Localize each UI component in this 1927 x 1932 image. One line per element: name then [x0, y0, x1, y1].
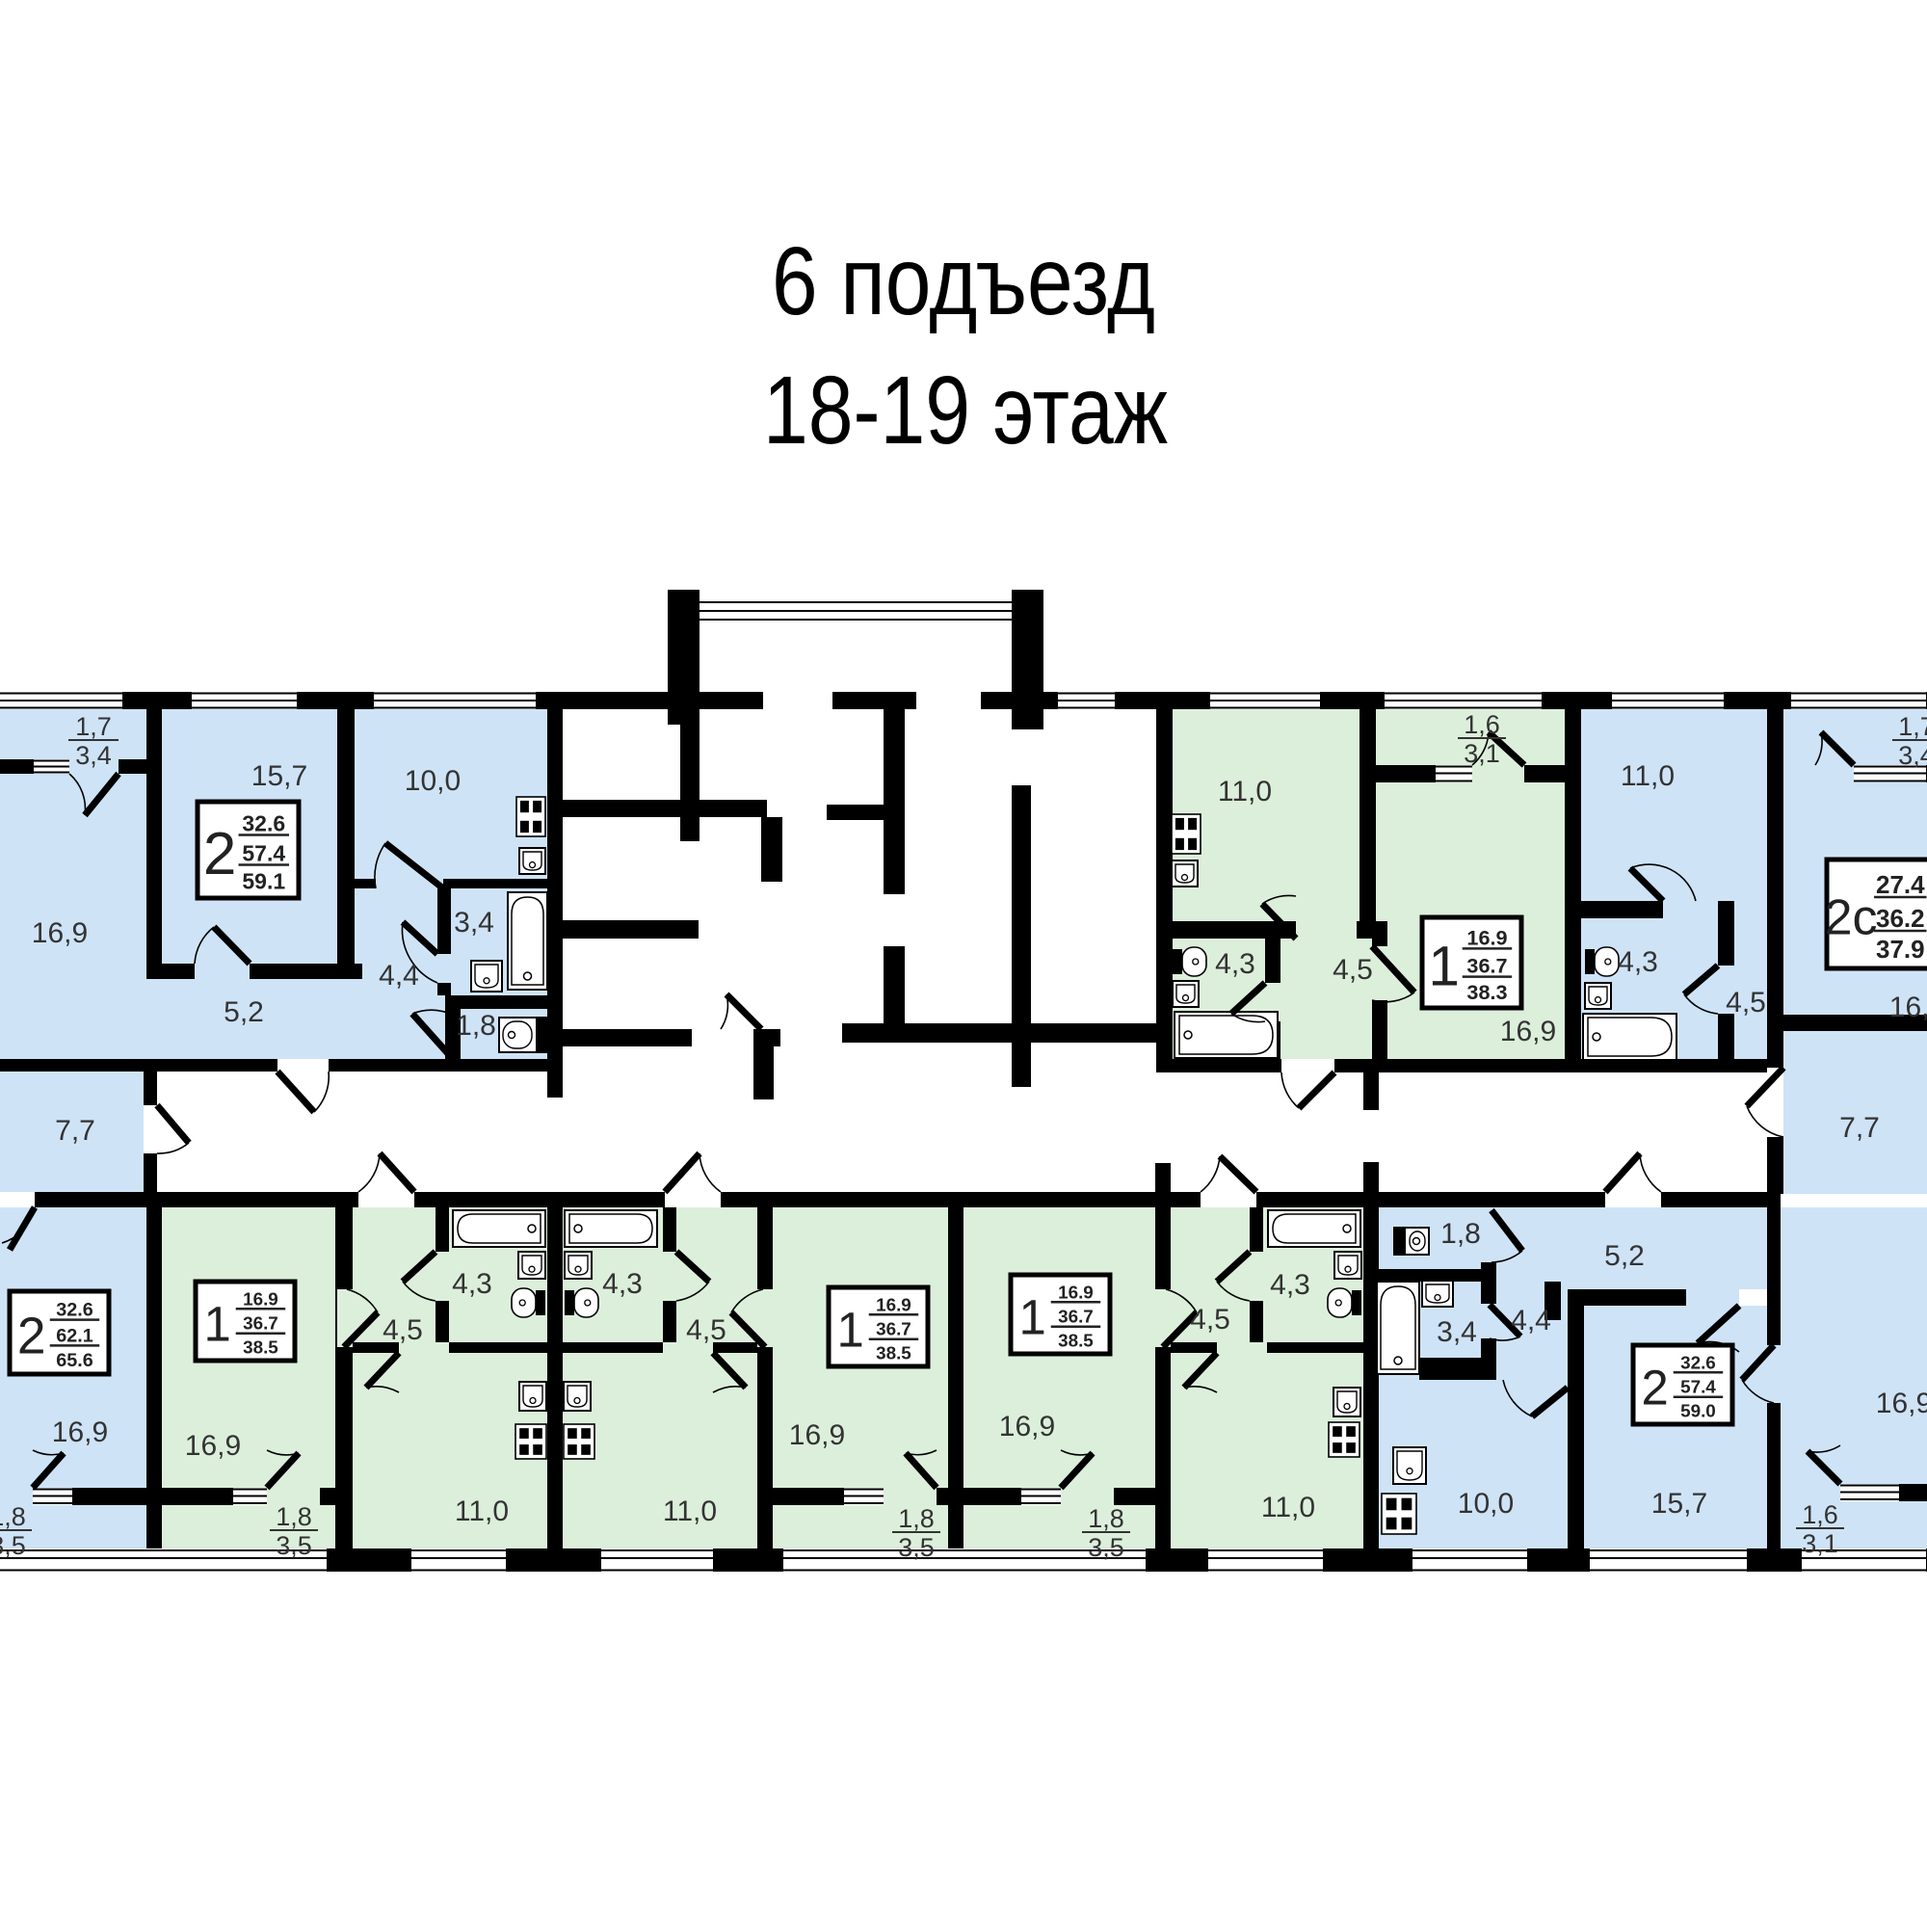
svg-text:32.6: 32.6 [242, 811, 285, 836]
svg-text:36.7: 36.7 [1058, 1307, 1094, 1327]
svg-text:1: 1 [837, 1302, 864, 1357]
svg-text:36.7: 36.7 [1466, 954, 1507, 978]
svg-text:4,4: 4,4 [1511, 1305, 1551, 1337]
svg-text:62.1: 62.1 [56, 1325, 92, 1346]
svg-text:16.9: 16.9 [1058, 1282, 1094, 1302]
svg-text:1,8: 1,8 [0, 1502, 26, 1531]
svg-text:3,4: 3,4 [75, 741, 112, 770]
svg-text:1,7: 1,7 [75, 712, 112, 741]
svg-text:2c: 2c [1825, 889, 1878, 945]
svg-text:32.6: 32.6 [1680, 1352, 1716, 1372]
svg-text:38.5: 38.5 [243, 1337, 278, 1358]
svg-text:4,3: 4,3 [452, 1268, 492, 1300]
svg-text:36.2: 36.2 [1876, 904, 1925, 933]
svg-text:16,9: 16,9 [999, 1411, 1055, 1442]
svg-text:4,5: 4,5 [1726, 987, 1766, 1019]
svg-text:16,9: 16,9 [1889, 992, 1927, 1023]
svg-text:11,0: 11,0 [1621, 760, 1675, 792]
svg-text:1,7: 1,7 [1898, 712, 1927, 741]
svg-text:16,9: 16,9 [185, 1430, 241, 1462]
svg-text:16,9: 16,9 [32, 917, 88, 949]
svg-text:3,5: 3,5 [898, 1533, 935, 1562]
svg-text:6 подъезд: 6 подъезд [772, 227, 1155, 335]
svg-text:5,2: 5,2 [1604, 1240, 1645, 1272]
svg-text:2: 2 [1642, 1360, 1669, 1415]
svg-text:16,9: 16,9 [789, 1419, 845, 1451]
svg-text:4,3: 4,3 [1215, 948, 1255, 980]
svg-text:16.9: 16.9 [243, 1288, 278, 1309]
svg-text:3,4: 3,4 [1898, 741, 1927, 770]
svg-text:38.5: 38.5 [1058, 1331, 1094, 1351]
svg-text:57.4: 57.4 [1680, 1377, 1716, 1397]
svg-text:38.3: 38.3 [1466, 980, 1507, 1004]
svg-text:3,5: 3,5 [0, 1531, 26, 1560]
svg-text:2: 2 [203, 821, 236, 887]
svg-text:4,5: 4,5 [383, 1314, 423, 1346]
svg-text:4,3: 4,3 [1618, 946, 1658, 978]
svg-text:1: 1 [1019, 1289, 1046, 1344]
svg-text:15,7: 15,7 [1651, 1488, 1707, 1520]
svg-text:59.1: 59.1 [242, 869, 285, 894]
svg-text:1,8: 1,8 [276, 1502, 312, 1531]
svg-text:16.9: 16.9 [1466, 925, 1507, 949]
svg-text:10,0: 10,0 [1458, 1488, 1514, 1520]
svg-text:11,0: 11,0 [1218, 776, 1272, 807]
svg-text:15,7: 15,7 [251, 760, 307, 792]
svg-text:1: 1 [204, 1296, 231, 1351]
svg-text:11,0: 11,0 [455, 1495, 509, 1527]
svg-text:1,8: 1,8 [898, 1504, 935, 1533]
svg-text:38.5: 38.5 [876, 1343, 911, 1363]
svg-text:11,0: 11,0 [663, 1495, 717, 1527]
svg-text:1,6: 1,6 [1464, 710, 1500, 739]
svg-text:18-19 этаж: 18-19 этаж [763, 357, 1168, 464]
svg-text:3,5: 3,5 [1088, 1533, 1124, 1562]
svg-text:16,9: 16,9 [52, 1416, 108, 1448]
svg-text:16,9: 16,9 [1876, 1388, 1927, 1419]
svg-text:36.7: 36.7 [243, 1313, 278, 1334]
svg-text:3,5: 3,5 [276, 1531, 312, 1560]
svg-text:4,5: 4,5 [1190, 1304, 1230, 1336]
svg-text:7,7: 7,7 [55, 1115, 95, 1147]
svg-text:32.6: 32.6 [56, 1300, 92, 1321]
svg-text:1,8: 1,8 [1440, 1218, 1481, 1250]
svg-text:1,8: 1,8 [1088, 1504, 1124, 1533]
svg-text:4,3: 4,3 [602, 1268, 643, 1300]
svg-text:36.7: 36.7 [876, 1319, 911, 1339]
svg-text:4,5: 4,5 [1333, 954, 1373, 986]
svg-text:7,7: 7,7 [1839, 1112, 1880, 1144]
svg-text:4,4: 4,4 [379, 960, 419, 992]
svg-text:1,6: 1,6 [1802, 1500, 1838, 1529]
svg-text:37.9: 37.9 [1876, 935, 1925, 964]
svg-text:10,0: 10,0 [405, 765, 461, 797]
svg-text:57.4: 57.4 [242, 841, 285, 866]
svg-text:5,2: 5,2 [224, 996, 264, 1028]
svg-text:3,4: 3,4 [1437, 1316, 1477, 1348]
svg-text:4,3: 4,3 [1270, 1269, 1310, 1301]
svg-text:3,4: 3,4 [454, 907, 494, 939]
svg-text:3,1: 3,1 [1802, 1529, 1838, 1558]
svg-text:27.4: 27.4 [1876, 870, 1925, 899]
svg-text:11,0: 11,0 [1261, 1492, 1315, 1523]
svg-text:1: 1 [1428, 935, 1459, 997]
svg-text:4,5: 4,5 [686, 1314, 726, 1346]
svg-text:16,9: 16,9 [1500, 1016, 1556, 1047]
svg-text:65.6: 65.6 [56, 1350, 92, 1371]
svg-text:59.0: 59.0 [1680, 1401, 1716, 1421]
svg-text:3,1: 3,1 [1464, 739, 1500, 768]
svg-text:1,8: 1,8 [456, 1010, 496, 1042]
svg-text:16.9: 16.9 [876, 1294, 911, 1314]
svg-text:2: 2 [17, 1308, 46, 1364]
